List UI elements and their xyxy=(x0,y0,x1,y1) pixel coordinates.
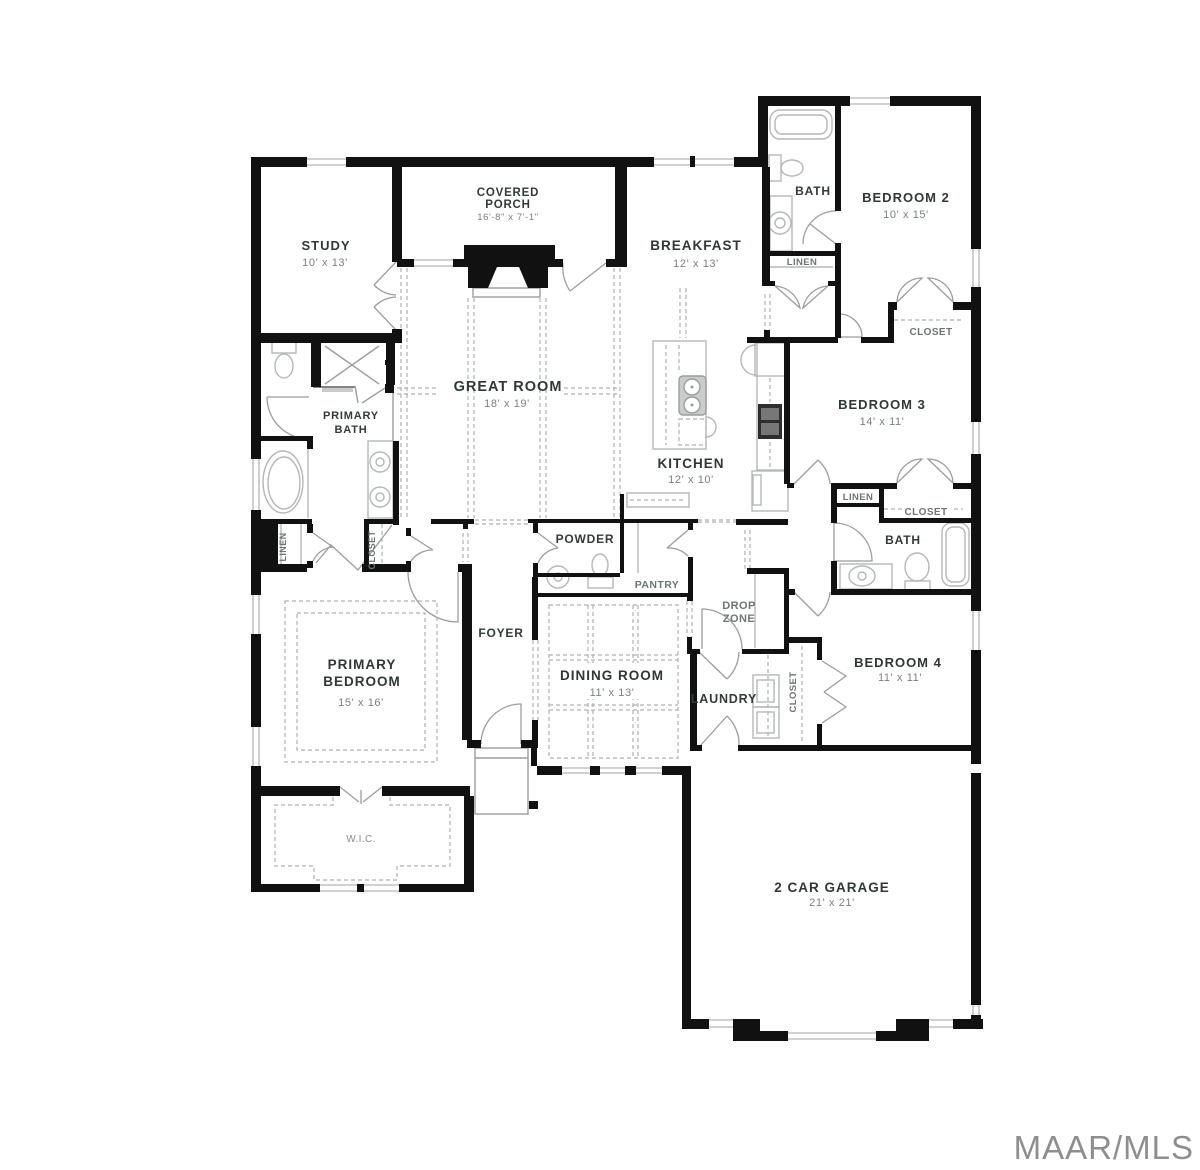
svg-text:BREAKFAST: BREAKFAST xyxy=(650,238,742,253)
svg-text:PANTRY: PANTRY xyxy=(635,579,679,591)
svg-text:BEDROOM 2: BEDROOM 2 xyxy=(862,190,950,205)
svg-text:PORCH: PORCH xyxy=(485,199,531,211)
svg-text:PRIMARY: PRIMARY xyxy=(328,657,397,672)
svg-text:CLOSET: CLOSET xyxy=(788,672,799,713)
svg-text:LAUNDRY: LAUNDRY xyxy=(691,692,757,706)
svg-text:COVERED: COVERED xyxy=(477,187,539,199)
svg-text:10' x 13': 10' x 13' xyxy=(302,257,348,269)
svg-text:STUDY: STUDY xyxy=(301,238,350,253)
svg-text:12' x 13': 12' x 13' xyxy=(673,258,719,270)
svg-text:14' x 11': 14' x 11' xyxy=(860,416,905,428)
svg-text:LINEN: LINEN xyxy=(278,533,288,562)
svg-text:21' x 21': 21' x 21' xyxy=(809,897,855,909)
svg-text:15' x 16': 15' x 16' xyxy=(338,697,384,709)
svg-text:LINEN: LINEN xyxy=(787,257,818,268)
svg-text:10' x 15': 10' x 15' xyxy=(883,209,929,221)
svg-text:16'-8" x 7'-1": 16'-8" x 7'-1" xyxy=(477,212,539,223)
svg-text:12' x 10': 12' x 10' xyxy=(668,474,714,486)
svg-text:W.I.C.: W.I.C. xyxy=(346,834,376,845)
svg-text:MAAR/MLS: MAAR/MLS xyxy=(1014,1129,1194,1166)
svg-text:DROP: DROP xyxy=(722,600,755,612)
svg-text:18' x 19': 18' x 19' xyxy=(484,398,530,410)
svg-text:CLOSET: CLOSET xyxy=(905,507,948,518)
svg-text:BATH: BATH xyxy=(335,424,368,436)
svg-text:BEDROOM 3: BEDROOM 3 xyxy=(838,397,926,412)
svg-text:BATH: BATH xyxy=(885,533,921,547)
svg-text:11' x 11': 11' x 11' xyxy=(878,672,922,684)
svg-text:ZONE: ZONE xyxy=(723,613,755,625)
svg-text:2 CAR GARAGE: 2 CAR GARAGE xyxy=(774,880,890,895)
svg-text:FOYER: FOYER xyxy=(478,626,523,640)
svg-text:BEDROOM: BEDROOM xyxy=(323,674,401,689)
svg-text:BEDROOM 4: BEDROOM 4 xyxy=(854,655,942,670)
svg-text:POWDER: POWDER xyxy=(556,532,615,546)
svg-text:LINEN: LINEN xyxy=(843,492,874,503)
svg-text:11' x 13': 11' x 13' xyxy=(590,687,635,699)
svg-text:KITCHEN: KITCHEN xyxy=(658,456,725,471)
svg-text:CLOSET: CLOSET xyxy=(910,327,953,338)
svg-text:CLOSET: CLOSET xyxy=(367,530,377,569)
svg-text:GREAT ROOM: GREAT ROOM xyxy=(454,379,563,395)
svg-text:BATH: BATH xyxy=(795,184,831,198)
svg-text:PRIMARY: PRIMARY xyxy=(323,410,379,422)
svg-text:DINING ROOM: DINING ROOM xyxy=(560,668,664,683)
